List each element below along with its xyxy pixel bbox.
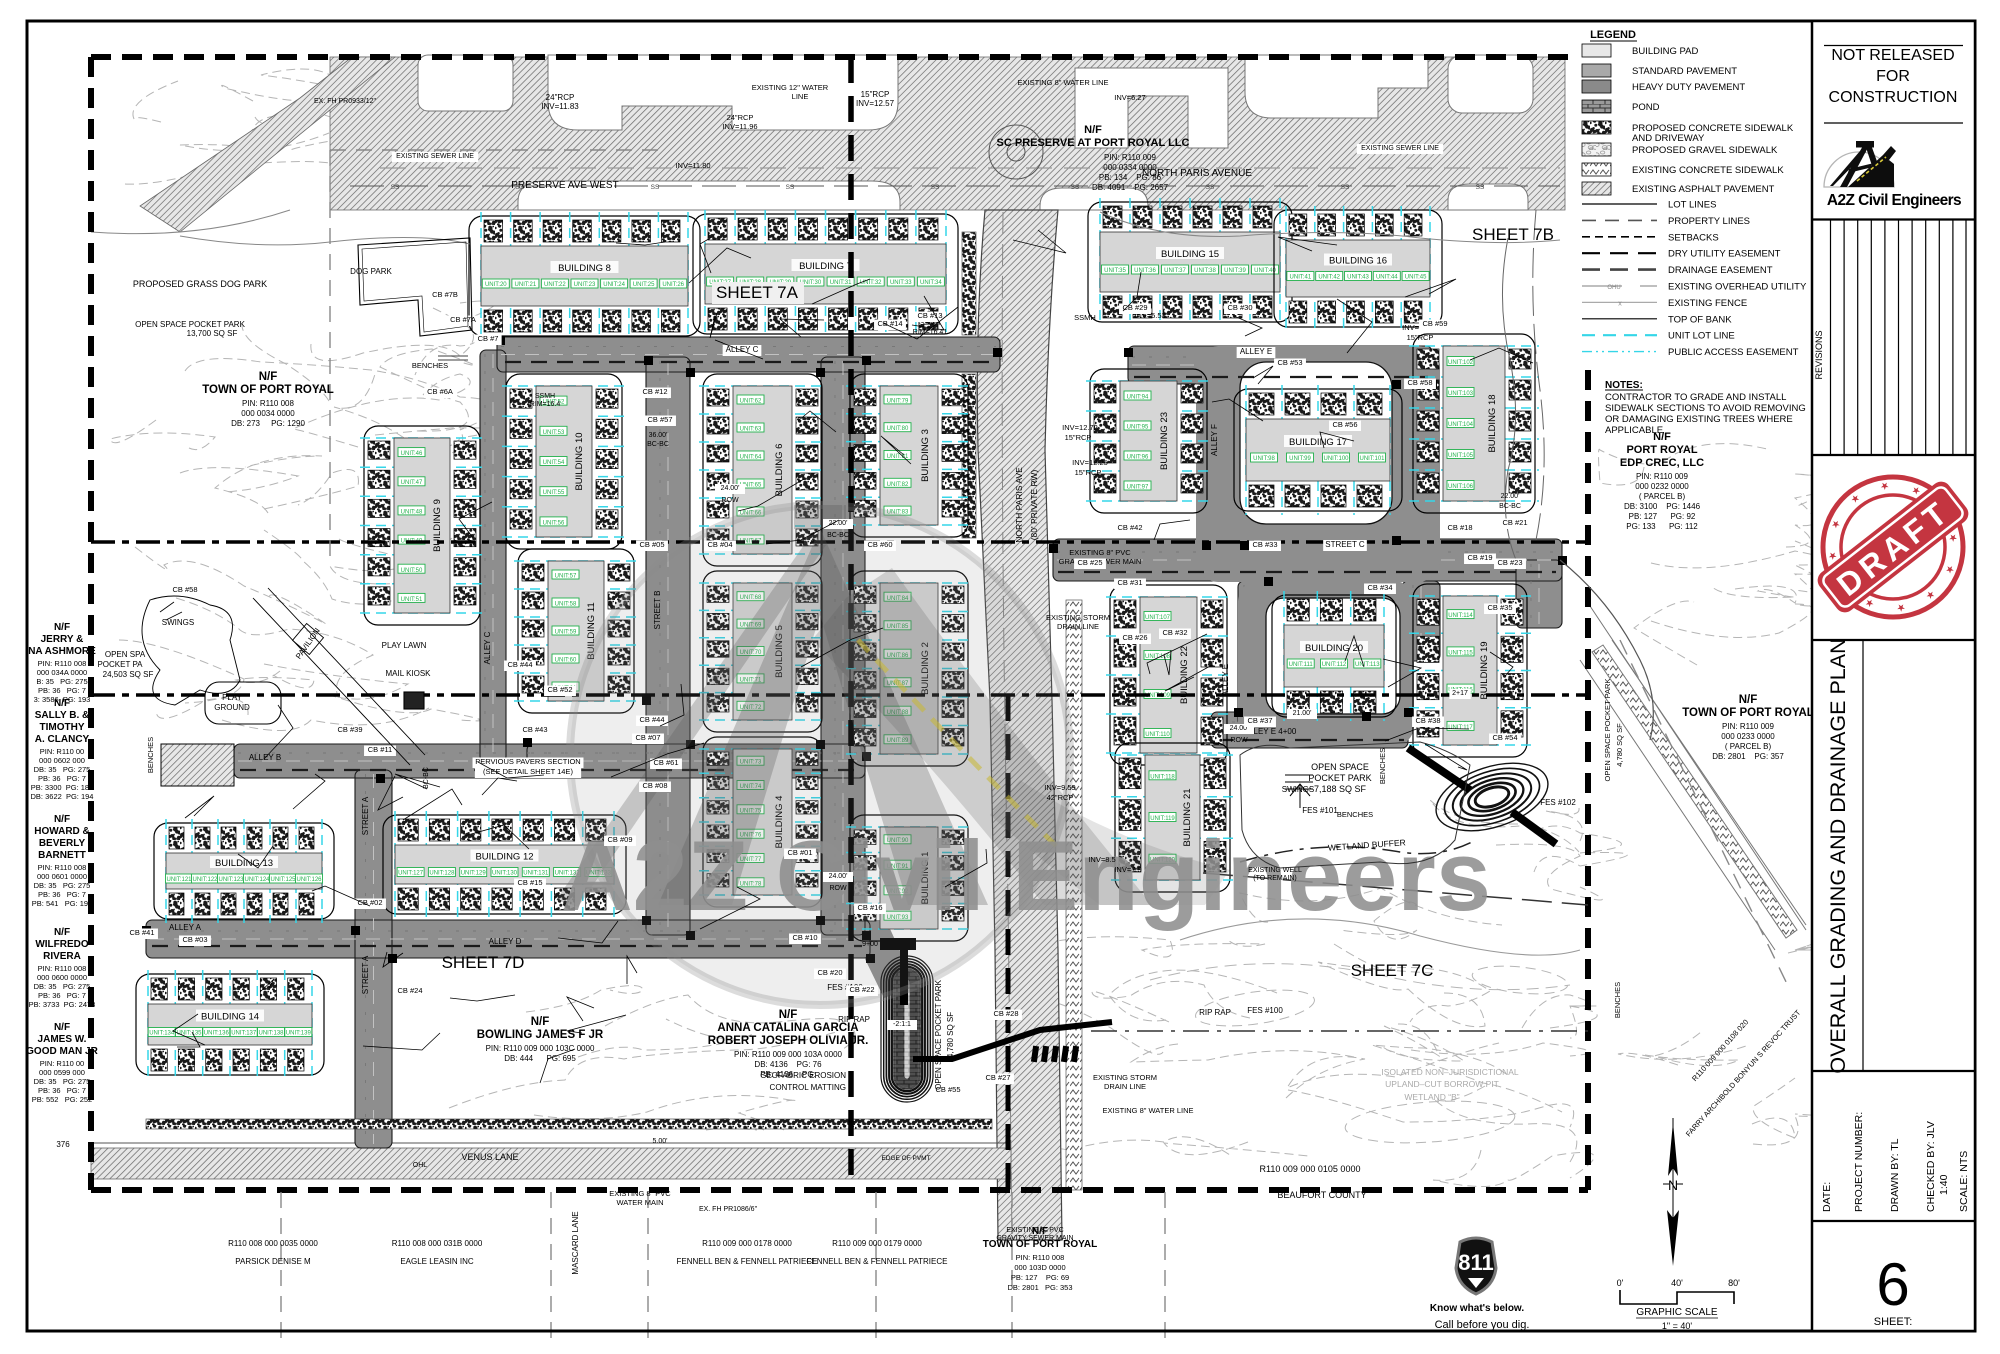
svg-text:PB: 3300 PG: 184: PB: 3300 PG: 184 xyxy=(31,783,94,792)
svg-text:POCKET PARK: POCKET PARK xyxy=(1308,773,1371,783)
svg-text:UNIT:44: UNIT:44 xyxy=(1376,275,1398,281)
svg-text:15"RCP: 15"RCP xyxy=(861,90,890,99)
svg-text:FES #102: FES #102 xyxy=(1540,798,1576,807)
svg-text:BUILDING 9: BUILDING 9 xyxy=(432,499,443,552)
svg-text:BENCHES: BENCHES xyxy=(412,361,448,370)
svg-text:CB #01: CB #01 xyxy=(787,848,812,857)
svg-text:PB: 36 PG: 7: PB: 36 PG: 7 xyxy=(38,774,86,783)
svg-text:15"RCP: 15"RCP xyxy=(1065,433,1092,442)
svg-text:POCKET PA: POCKET PA xyxy=(97,660,143,669)
svg-text:-2:1:1: -2:1:1 xyxy=(893,1021,911,1028)
svg-text:GOOD MAN JR: GOOD MAN JR xyxy=(26,1046,98,1057)
svg-text:40': 40' xyxy=(1671,1278,1683,1288)
svg-text:UNIT:97: UNIT:97 xyxy=(1127,485,1149,491)
svg-text:UNIT:129: UNIT:129 xyxy=(461,871,487,877)
svg-text:15"RCP: 15"RCP xyxy=(1075,468,1102,477)
svg-text:UNIT:54: UNIT:54 xyxy=(543,460,565,466)
svg-text:CB #35: CB #35 xyxy=(1487,603,1512,612)
svg-text:UNIT:48: UNIT:48 xyxy=(401,509,423,515)
svg-text:CB #39: CB #39 xyxy=(337,725,362,734)
svg-text:SALLY B. &: SALLY B. & xyxy=(35,710,89,721)
svg-text:BENCHES: BENCHES xyxy=(1613,982,1622,1018)
svg-text:PB: 541 PG: 194: PB: 541 PG: 194 xyxy=(32,899,92,908)
svg-text:N/F: N/F xyxy=(54,622,70,633)
svg-text:UNIT:101: UNIT:101 xyxy=(1359,456,1385,462)
svg-text:EXISTING 8" WATER LINE: EXISTING 8" WATER LINE xyxy=(1017,78,1108,87)
svg-text:DB: 2801 PG: 357: DB: 2801 PG: 357 xyxy=(1712,752,1784,761)
svg-text:EX. FH PR1086/6": EX. FH PR1086/6" xyxy=(699,1206,758,1213)
svg-text:DB: 444 PG: 695: DB: 444 PG: 695 xyxy=(504,1054,576,1063)
svg-text:DRAIN LINE: DRAIN LINE xyxy=(1104,1082,1146,1091)
svg-text:UNIT:126: UNIT:126 xyxy=(296,877,322,883)
svg-text:DRY UTILITY EASEMENT: DRY UTILITY EASEMENT xyxy=(1668,249,1781,260)
svg-text:EAGLE LEASIN INC: EAGLE LEASIN INC xyxy=(400,1257,474,1266)
svg-text:CB #19: CB #19 xyxy=(1467,553,1492,562)
svg-text:CB #18: CB #18 xyxy=(1447,523,1472,532)
svg-text:PIN: R110 008: PIN: R110 008 xyxy=(38,964,87,973)
svg-text:UNIT:21: UNIT:21 xyxy=(515,282,537,288)
svg-text:4,780 SQ SF: 4,780 SQ SF xyxy=(946,1012,955,1058)
svg-text:DB: 35 PG: 275: DB: 35 PG: 275 xyxy=(34,881,91,890)
svg-text:CB #04: CB #04 xyxy=(707,540,732,549)
svg-text:PIN: R110 00: PIN: R110 00 xyxy=(40,1059,84,1068)
svg-text:UNIT:57: UNIT:57 xyxy=(555,574,577,580)
svg-text:CONTROL MATTING: CONTROL MATTING xyxy=(770,1083,846,1092)
svg-text:BUILDING 18: BUILDING 18 xyxy=(1487,394,1498,452)
svg-text:DB: 3622 PG: 194: DB: 3622 PG: 194 xyxy=(31,792,94,801)
svg-text:MAIL KIOSK: MAIL KIOSK xyxy=(385,669,431,678)
svg-text:SHEET 7C: SHEET 7C xyxy=(1351,961,1434,980)
svg-text:CB #10: CB #10 xyxy=(792,933,817,942)
svg-text:CB #59: CB #59 xyxy=(1422,319,1447,328)
svg-text:BUILDING 6: BUILDING 6 xyxy=(774,444,785,497)
svg-text:PORT ROYAL: PORT ROYAL xyxy=(1626,444,1697,456)
svg-text:UNIT:41: UNIT:41 xyxy=(1290,275,1312,281)
svg-text:ALLEY C: ALLEY C xyxy=(483,631,492,664)
svg-text:UNIT:131: UNIT:131 xyxy=(523,871,549,877)
svg-text:UNIT:82: UNIT:82 xyxy=(887,482,909,488)
svg-text:1:40: 1:40 xyxy=(1938,1174,1950,1195)
svg-text:CB #20: CB #20 xyxy=(817,968,842,977)
svg-text:EX. FH PR0933/12": EX. FH PR0933/12" xyxy=(314,98,377,105)
svg-text:BUILDING PAD: BUILDING PAD xyxy=(1632,46,1698,57)
svg-text:FOR: FOR xyxy=(1876,68,1910,85)
svg-text:000 0233 0000: 000 0233 0000 xyxy=(1721,732,1775,741)
svg-text:UNIT:118: UNIT:118 xyxy=(1150,774,1175,780)
svg-text:000 0599 000: 000 0599 000 xyxy=(39,1068,85,1077)
svg-text:SS: SS xyxy=(391,184,400,191)
svg-text:0': 0' xyxy=(1617,1278,1624,1288)
svg-text:EXISTING 8" PVC: EXISTING 8" PVC xyxy=(1069,548,1131,557)
svg-text:UNIT:79: UNIT:79 xyxy=(887,398,909,404)
svg-text:SC PRESERVE AT PORT ROYAL LLC: SC PRESERVE AT PORT ROYAL LLC xyxy=(997,137,1190,149)
svg-text:BUILDING 20: BUILDING 20 xyxy=(1305,643,1363,654)
svg-text:CB #21: CB #21 xyxy=(1502,518,1527,527)
svg-text:STREET C: STREET C xyxy=(1325,540,1365,549)
svg-text:PROPOSED GRASS DOG PARK: PROPOSED GRASS DOG PARK xyxy=(133,279,267,289)
svg-text:UNIT:53: UNIT:53 xyxy=(543,430,565,436)
svg-text:UNIT:50: UNIT:50 xyxy=(401,568,423,574)
svg-text:EXISTING CONCRETE SIDEWALK: EXISTING CONCRETE SIDEWALK xyxy=(1632,165,1784,176)
svg-text:CONSTRUCTION: CONSTRUCTION xyxy=(1829,89,1958,106)
svg-text:CB #44: CB #44 xyxy=(639,715,664,724)
svg-text:EXISTING SEWER LINE: EXISTING SEWER LINE xyxy=(396,153,474,160)
svg-text:OHU: OHU xyxy=(1607,285,1620,291)
svg-text:SS: SS xyxy=(931,184,940,191)
svg-text:OPEN SPACE POCKET PARK: OPEN SPACE POCKET PARK xyxy=(135,320,245,329)
svg-text:UNIT:96: UNIT:96 xyxy=(1127,455,1149,461)
svg-text:GRAPHIC SCALE: GRAPHIC SCALE xyxy=(1636,1307,1717,1318)
svg-text:UNIT:42: UNIT:42 xyxy=(1318,275,1340,281)
svg-text:376: 376 xyxy=(56,1140,70,1149)
svg-text:UNIT:20: UNIT:20 xyxy=(485,282,507,288)
svg-text:UNIT:135: UNIT:135 xyxy=(176,1031,202,1037)
svg-text:BEAUFORT COUNTY: BEAUFORT COUNTY xyxy=(1277,1190,1366,1200)
svg-text:DB: 2801 PG: 353: DB: 2801 PG: 353 xyxy=(1007,1283,1072,1292)
svg-text:INV=12.25: INV=12.25 xyxy=(1072,458,1108,467)
svg-text:ROW: ROW xyxy=(829,885,847,892)
svg-text:N/F: N/F xyxy=(54,814,70,825)
svg-text:B: 35 PG: 275: B: 35 PG: 275 xyxy=(36,677,87,686)
svg-text:BUILDING 8: BUILDING 8 xyxy=(558,263,611,274)
svg-text:BENCHES: BENCHES xyxy=(1378,748,1387,784)
svg-text:CB #33: CB #33 xyxy=(1252,540,1277,549)
svg-text:PIN: R110 009 000 103C 0000: PIN: R110 009 000 103C 0000 xyxy=(486,1044,595,1053)
svg-text:UPLAND–CUT BORROW PIT: UPLAND–CUT BORROW PIT xyxy=(1385,1079,1499,1089)
svg-text:DB: 35 PG: 275: DB: 35 PG: 275 xyxy=(34,982,91,991)
svg-text:UNIT:43: UNIT:43 xyxy=(1347,275,1369,281)
svg-text:CB #28: CB #28 xyxy=(993,1009,1018,1018)
svg-text:INV=11.83: INV=11.83 xyxy=(541,102,579,111)
svg-text:SSMH: SSMH xyxy=(535,393,555,400)
svg-text:UNIT:23: UNIT:23 xyxy=(574,282,596,288)
svg-text:UNIT:134: UNIT:134 xyxy=(149,1031,175,1037)
svg-text:EDGE OF PVMT: EDGE OF PVMT xyxy=(881,1155,930,1162)
svg-text:UNIT:59: UNIT:59 xyxy=(555,630,577,636)
svg-text:SS: SS xyxy=(651,184,660,191)
svg-text:UNIT:98: UNIT:98 xyxy=(1253,456,1275,462)
svg-text:UNIT:51: UNIT:51 xyxy=(401,597,423,603)
svg-text:PB: 3733 PG: 2473: PB: 3733 PG: 2473 xyxy=(29,1000,96,1009)
svg-text:GROUND: GROUND xyxy=(214,703,250,712)
svg-text:SS: SS xyxy=(1206,184,1215,191)
svg-text:SHEET 7B: SHEET 7B xyxy=(1472,225,1554,244)
svg-text:INV=11.96: INV=11.96 xyxy=(722,122,757,131)
svg-text:000 0232 0000: 000 0232 0000 xyxy=(1635,482,1689,491)
svg-text:WILFREDO: WILFREDO xyxy=(35,939,89,950)
svg-text:NORTH PARIS AVENUE: NORTH PARIS AVENUE xyxy=(1142,168,1252,179)
svg-text:PRESERVE AVE WEST: PRESERVE AVE WEST xyxy=(511,180,618,191)
svg-text:42"RCP: 42"RCP xyxy=(1047,793,1074,802)
svg-text:N/F: N/F xyxy=(54,927,70,938)
svg-text:BUILDING 16: BUILDING 16 xyxy=(1329,256,1387,267)
svg-text:OPEN SPACE POCKET PARK: OPEN SPACE POCKET PARK xyxy=(934,979,943,1089)
svg-text:AND DRIVEWAY: AND DRIVEWAY xyxy=(1632,133,1705,144)
svg-text:CB #42: CB #42 xyxy=(1117,523,1142,532)
svg-text:DB: 4136 PG: 76: DB: 4136 PG: 76 xyxy=(754,1060,822,1069)
svg-text:UNIT:106: UNIT:106 xyxy=(1448,484,1474,490)
svg-text:PB: 36 PG: 7: PB: 36 PG: 7 xyxy=(38,991,86,1000)
svg-text:EXISTING SEWER LINE: EXISTING SEWER LINE xyxy=(1361,145,1439,152)
svg-text:OPEN SPACE POCKET PARK: OPEN SPACE POCKET PARK xyxy=(1603,679,1612,782)
svg-text:EXISTING STORM: EXISTING STORM xyxy=(1093,1073,1157,1082)
svg-text:ALLEY D: ALLEY D xyxy=(489,937,522,946)
svg-text:BUILDING 12: BUILDING 12 xyxy=(475,852,533,863)
svg-text:BUILDING 23: BUILDING 23 xyxy=(1159,412,1170,470)
svg-text:ALLEY E: ALLEY E xyxy=(1221,664,1230,696)
svg-text:UNIT:95: UNIT:95 xyxy=(1127,425,1149,431)
svg-text:CB #58: CB #58 xyxy=(1407,378,1432,387)
svg-text:UNIT:25: UNIT:25 xyxy=(633,282,655,288)
svg-text:PIN: R110 009: PIN: R110 009 xyxy=(1104,153,1156,162)
svg-text:ROW: ROW xyxy=(721,497,739,504)
svg-text:CB #03: CB #03 xyxy=(182,935,207,944)
svg-text:DB: 273 PG: 1290: DB: 273 PG: 1290 xyxy=(231,419,305,428)
svg-text:BARNETT: BARNETT xyxy=(38,850,86,861)
svg-text:CB #13: CB #13 xyxy=(917,311,942,320)
svg-text:N/F: N/F xyxy=(1653,431,1671,443)
svg-text:UNIT:128: UNIT:128 xyxy=(429,871,455,877)
svg-text:CB #56: CB #56 xyxy=(1332,420,1357,429)
svg-text:MASCARD LANE: MASCARD LANE xyxy=(571,1211,580,1274)
svg-text:ALLEY F: ALLEY F xyxy=(1210,424,1219,456)
svg-text:R110 009 000 0179 0000: R110 009 000 0179 0000 xyxy=(832,1239,922,1248)
svg-text:24"RCP: 24"RCP xyxy=(727,113,754,122)
svg-text:CB #43: CB #43 xyxy=(522,725,547,734)
svg-text:PIN: R110 00: PIN: R110 00 xyxy=(40,747,84,756)
svg-text:ALLEY A: ALLEY A xyxy=(169,923,202,932)
svg-text:UNIT:136: UNIT:136 xyxy=(204,1031,230,1037)
svg-text:FES #100: FES #100 xyxy=(1247,1006,1283,1015)
svg-text:000 103D 0000: 000 103D 0000 xyxy=(1014,1263,1065,1272)
svg-text:UNIT:108: UNIT:108 xyxy=(1145,654,1171,660)
svg-text:BENCHES: BENCHES xyxy=(146,737,155,773)
svg-text:BENCHES: BENCHES xyxy=(1337,810,1373,819)
svg-text:BUILDING 19: BUILDING 19 xyxy=(1479,641,1490,699)
svg-text:UNIT:80: UNIT:80 xyxy=(887,426,909,432)
svg-text:UNIT:63: UNIT:63 xyxy=(740,427,762,433)
svg-text:BUILDING 14: BUILDING 14 xyxy=(201,1012,259,1023)
svg-text:PB: 127 PG: 92: PB: 127 PG: 92 xyxy=(1629,512,1696,521)
svg-text:21.00': 21.00' xyxy=(1293,710,1312,717)
svg-text:PROPOSED GRAVEL SIDEWALK: PROPOSED GRAVEL SIDEWALK xyxy=(1632,145,1778,156)
svg-text:UNIT:127: UNIT:127 xyxy=(398,871,424,877)
svg-text:SS: SS xyxy=(1341,184,1350,191)
svg-text:PUBLIC ACCESS EASEMENT: PUBLIC ACCESS EASEMENT xyxy=(1668,347,1799,358)
svg-text:CB #52: CB #52 xyxy=(547,685,572,694)
svg-text:DB: 35 PG: 275: DB: 35 PG: 275 xyxy=(34,765,91,774)
svg-text:DB: 4091 PG: 2657: DB: 4091 PG: 2657 xyxy=(1092,183,1169,192)
svg-text:SHEET:: SHEET: xyxy=(1874,1316,1913,1328)
svg-text:SSMH: SSMH xyxy=(1074,313,1096,322)
svg-text:ROW: ROW xyxy=(1230,737,1248,744)
svg-text:OVERALL GRADING AND DRAINAGE P: OVERALL GRADING AND DRAINAGE PLAN xyxy=(1826,638,1850,1073)
svg-text:STREET A: STREET A xyxy=(361,796,370,835)
svg-text:UNIT:36: UNIT:36 xyxy=(1134,268,1156,274)
svg-text:CB #23: CB #23 xyxy=(1497,558,1522,567)
svg-text:WATER MAIN: WATER MAIN xyxy=(616,1198,663,1207)
svg-text:BC-BC: BC-BC xyxy=(647,441,669,448)
svg-text:UNIT:34: UNIT:34 xyxy=(920,280,942,286)
svg-text:(SEE DETAIL SHEET 14E): (SEE DETAIL SHEET 14E) xyxy=(483,767,573,776)
svg-text:DB: 35 PG: 275: DB: 35 PG: 275 xyxy=(34,1077,91,1086)
svg-text:CB #32: CB #32 xyxy=(1162,628,1187,637)
svg-text:UNIT:99: UNIT:99 xyxy=(1289,456,1311,462)
svg-text:PLAY LAWN: PLAY LAWN xyxy=(382,641,427,650)
svg-text:UNIT:60: UNIT:60 xyxy=(555,658,577,664)
svg-text:PB: 552 PG: 252: PB: 552 PG: 252 xyxy=(32,1095,92,1104)
svg-text:EXISTING STORM: EXISTING STORM xyxy=(1046,613,1110,622)
svg-text:CB #05: CB #05 xyxy=(639,540,664,549)
svg-text:HEAVY DUTY PAVEMENT: HEAVY DUTY PAVEMENT xyxy=(1632,82,1745,93)
svg-text:PROPERTY LINES: PROPERTY LINES xyxy=(1668,216,1750,227)
svg-text:INV=9.59: INV=9.59 xyxy=(1044,783,1075,792)
svg-text:BUILDING 13: BUILDING 13 xyxy=(215,858,273,869)
svg-text:TOWN OF PORT ROYAL: TOWN OF PORT ROYAL xyxy=(1682,707,1814,719)
svg-text:BC-BC: BC-BC xyxy=(423,767,430,789)
svg-text:N/F: N/F xyxy=(1084,124,1102,136)
svg-text:N/F: N/F xyxy=(54,698,70,709)
svg-text:FENNELL BEN & FENNELL PATRIECE: FENNELL BEN & FENNELL PATRIECE xyxy=(807,1257,948,1266)
svg-text:CB #6A: CB #6A xyxy=(427,387,453,396)
svg-text:UNIT:39: UNIT:39 xyxy=(1224,268,1246,274)
svg-text:HOWARD &: HOWARD & xyxy=(34,826,90,837)
svg-text:FENNELL BEN & FENNELL PATRIECE: FENNELL BEN & FENNELL PATRIECE xyxy=(677,1257,818,1266)
svg-text:DRAINAGE EASEMENT: DRAINAGE EASEMENT xyxy=(1668,265,1773,276)
svg-text:CB #30: CB #30 xyxy=(1227,303,1252,312)
svg-text:LOT LINES: LOT LINES xyxy=(1668,200,1716,211)
svg-text:UNIT:32: UNIT:32 xyxy=(860,280,882,286)
svg-text:UNIT:114: UNIT:114 xyxy=(1448,613,1473,619)
svg-text:CB #38: CB #38 xyxy=(1415,716,1440,725)
svg-text:UNIT:115: UNIT:115 xyxy=(1448,650,1473,656)
svg-text:UNIT:117: UNIT:117 xyxy=(1448,725,1473,731)
svg-text:DRAIN LINE: DRAIN LINE xyxy=(1057,622,1099,631)
svg-text:UNIT:58: UNIT:58 xyxy=(555,602,577,608)
svg-text:EXISTING ASPHALT PAVEMENT: EXISTING ASPHALT PAVEMENT xyxy=(1632,184,1775,195)
svg-text:A. CLANCY: A. CLANCY xyxy=(35,734,90,745)
svg-text:GEOFABRIC EROSION: GEOFABRIC EROSION xyxy=(760,1071,846,1080)
svg-text:SIDEWALK SECTIONS TO AVOID REM: SIDEWALK SECTIONS TO AVOID REMOVING xyxy=(1605,403,1806,414)
svg-text:PB: 36 PG: 7: PB: 36 PG: 7 xyxy=(38,686,86,695)
svg-text:PIN: R110 008: PIN: R110 008 xyxy=(1016,1253,1065,1262)
svg-text:UNIT:56: UNIT:56 xyxy=(543,520,565,526)
svg-text:BEVERLY: BEVERLY xyxy=(39,838,86,849)
svg-text:24"RCP: 24"RCP xyxy=(546,93,575,102)
svg-text:Call before you dig.: Call before you dig. xyxy=(1435,1319,1530,1331)
svg-text:UNIT:123: UNIT:123 xyxy=(218,877,244,883)
svg-text:DATE:: DATE: xyxy=(1821,1182,1833,1212)
svg-text:R110 008 000 0035 0000: R110 008 000 0035 0000 xyxy=(228,1239,318,1248)
svg-text:UNIT:104: UNIT:104 xyxy=(1448,422,1474,428)
svg-text:UNIT:37: UNIT:37 xyxy=(1164,268,1186,274)
svg-text:REVISIONS: REVISIONS xyxy=(1814,330,1824,379)
svg-text:UNIT:47: UNIT:47 xyxy=(401,480,423,486)
svg-text:CB #08: CB #08 xyxy=(642,781,667,790)
svg-text:CB #15: CB #15 xyxy=(517,878,542,887)
svg-text:UNIT:138: UNIT:138 xyxy=(258,1031,284,1037)
svg-text:PROJECT NUMBER:: PROJECT NUMBER: xyxy=(1853,1112,1865,1212)
svg-text:INV=7.9: INV=7.9 xyxy=(1114,865,1141,874)
svg-text:UNIT:107: UNIT:107 xyxy=(1145,615,1171,621)
svg-text:EDP CREC, LLC: EDP CREC, LLC xyxy=(1620,457,1704,469)
svg-text:UNIT:139: UNIT:139 xyxy=(286,1031,312,1037)
svg-text:UNIT:105: UNIT:105 xyxy=(1448,453,1474,459)
svg-text:STREET A: STREET A xyxy=(361,955,370,994)
svg-text:UNIT:122: UNIT:122 xyxy=(192,877,218,883)
svg-text:24,503 SQ SF: 24,503 SQ SF xyxy=(103,670,154,679)
svg-text:RIVERA: RIVERA xyxy=(43,951,81,962)
svg-text:CB #24: CB #24 xyxy=(397,986,422,995)
svg-text:INV=6.27: INV=6.27 xyxy=(1114,93,1145,102)
svg-text:UNIT:111: UNIT:111 xyxy=(1289,662,1314,668)
svg-text:PIN: R110 009: PIN: R110 009 xyxy=(1722,722,1774,731)
svg-text:TOP OF BANK: TOP OF BANK xyxy=(1668,314,1732,325)
svg-text:CB #57: CB #57 xyxy=(647,415,672,424)
svg-text:000 0602 000: 000 0602 000 xyxy=(39,756,85,765)
svg-text:NA ASHMORE: NA ASHMORE xyxy=(28,646,96,657)
svg-text:EXISTING 12" WATER: EXISTING 12" WATER xyxy=(752,83,829,92)
svg-text:ALLEY E: ALLEY E xyxy=(1240,347,1272,356)
svg-text:BUILDING 15: BUILDING 15 xyxy=(1161,249,1219,260)
svg-text:BUILDING 17: BUILDING 17 xyxy=(1289,437,1347,448)
svg-text:DRAWN BY: TL: DRAWN BY: TL xyxy=(1889,1138,1901,1212)
svg-text:LINE: LINE xyxy=(792,92,809,101)
svg-text:RIM=16.4: RIM=16.4 xyxy=(530,401,561,408)
svg-text:CB #09: CB #09 xyxy=(607,835,632,844)
svg-text:UNIT:110: UNIT:110 xyxy=(1145,732,1170,738)
svg-text:UNIT:38: UNIT:38 xyxy=(1194,268,1216,274)
svg-text:R110 008 000 031B 0000: R110 008 000 031B 0000 xyxy=(392,1239,483,1248)
svg-text:CB #7: CB #7 xyxy=(478,334,499,343)
svg-text:N: N xyxy=(1668,1177,1678,1193)
svg-text:EXISTING 8" PVC: EXISTING 8" PVC xyxy=(1006,1227,1063,1234)
svg-text:22.00': 22.00' xyxy=(829,520,848,527)
svg-text:UNIT:64: UNIT:64 xyxy=(740,455,762,461)
svg-text:SETBACKS: SETBACKS xyxy=(1668,232,1719,243)
svg-text:UNIT:46: UNIT:46 xyxy=(401,451,423,457)
svg-text:9+00: 9+00 xyxy=(862,941,878,948)
svg-text:UNIT:94: UNIT:94 xyxy=(1127,395,1149,401)
svg-text:CB #07: CB #07 xyxy=(635,733,660,742)
svg-text:( PARCEL B): ( PARCEL B) xyxy=(1639,492,1686,501)
svg-text:OPEN SPA: OPEN SPA xyxy=(105,650,146,659)
svg-text:000 0034 0000: 000 0034 0000 xyxy=(241,409,295,418)
svg-text:UNIT:130: UNIT:130 xyxy=(492,871,518,877)
svg-text:N/F: N/F xyxy=(779,1009,798,1021)
svg-text:CB #41: CB #41 xyxy=(129,928,154,937)
svg-text:80': 80' xyxy=(1728,1278,1740,1288)
svg-text:UNIT:113: UNIT:113 xyxy=(1355,662,1380,668)
svg-text:(80' PRIVATE RW): (80' PRIVATE RW) xyxy=(1029,470,1039,541)
svg-text:PB: 36 PG: 7: PB: 36 PG: 7 xyxy=(38,890,86,899)
svg-text:N/F: N/F xyxy=(259,371,278,383)
svg-text:FES #101: FES #101 xyxy=(1302,806,1338,815)
svg-text:CB #12: CB #12 xyxy=(642,387,667,396)
svg-text:PB: 127 PG: 69: PB: 127 PG: 69 xyxy=(1011,1273,1069,1282)
svg-text:JERRY &: JERRY & xyxy=(41,634,84,645)
svg-text:22.00': 22.00' xyxy=(1501,493,1520,500)
svg-text:SS: SS xyxy=(786,184,795,191)
svg-text:VENUS LANE: VENUS LANE xyxy=(461,1152,518,1162)
svg-text:CB #44: CB #44 xyxy=(507,660,532,669)
svg-text:N/F: N/F xyxy=(1739,694,1758,706)
svg-text:CB #58: CB #58 xyxy=(172,585,197,594)
svg-text:R110 009 000 0178 0000: R110 009 000 0178 0000 xyxy=(702,1239,792,1248)
svg-text:PIN: R110 008: PIN: R110 008 xyxy=(38,659,87,668)
svg-text:x: x xyxy=(1618,300,1622,307)
svg-text:OPEN SPACE: OPEN SPACE xyxy=(1311,762,1369,772)
